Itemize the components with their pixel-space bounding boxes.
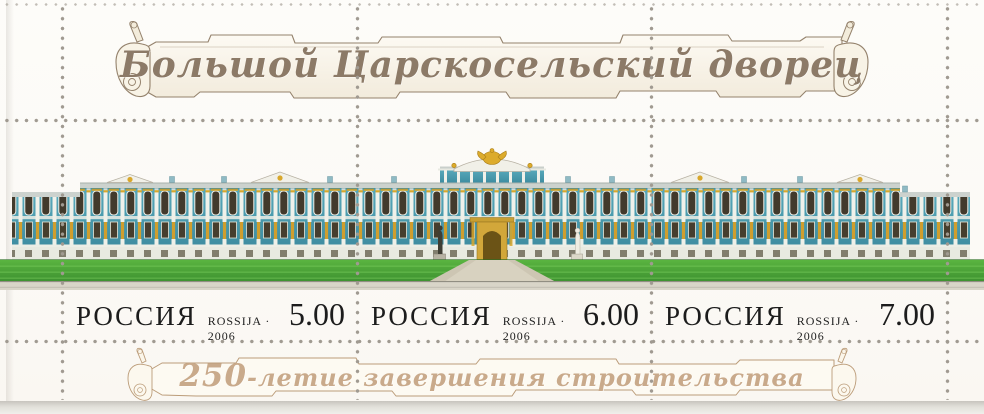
face-value: 7.00	[879, 296, 935, 333]
face-value: 5.00	[289, 296, 345, 333]
gold-balcony	[470, 218, 514, 223]
palace-illustration	[0, 148, 984, 290]
sheet-title: Большой Царскосельский дворец	[0, 44, 984, 86]
country-name: РОССИЯ	[76, 301, 197, 332]
country-name: РОССИЯ	[371, 301, 492, 332]
issue-year: ROSSIJA · 2006	[208, 314, 289, 344]
anniversary-caption: 250-летие завершения строительства	[0, 358, 984, 394]
stamp-label: РОССИЯ ROSSIJA · 2006 6.00	[357, 291, 651, 337]
issue-year: ROSSIJA · 2006	[797, 314, 879, 344]
face-value: 6.00	[583, 296, 639, 333]
anniversary-suffix: -летие завершения строительства	[247, 363, 805, 392]
anniversary-number: 250	[179, 358, 247, 394]
stamp-label: РОССИЯ ROSSIJA · 2006 5.00	[62, 291, 357, 337]
issue-year: ROSSIJA · 2006	[503, 314, 583, 344]
perforation-row-upper	[0, 117, 984, 124]
stamp-label: РОССИЯ ROSSIJA · 2006 7.00	[651, 291, 947, 337]
front-road	[0, 281, 984, 290]
stamp-sheet: Большой Царскосельский дворец	[0, 0, 984, 401]
stamp-caption-row: РОССИЯ ROSSIJA · 2006 5.00 РОССИЯ ROSSIJ…	[0, 291, 984, 341]
country-name: РОССИЯ	[665, 301, 786, 332]
perforation-row-top	[0, 1, 984, 8]
